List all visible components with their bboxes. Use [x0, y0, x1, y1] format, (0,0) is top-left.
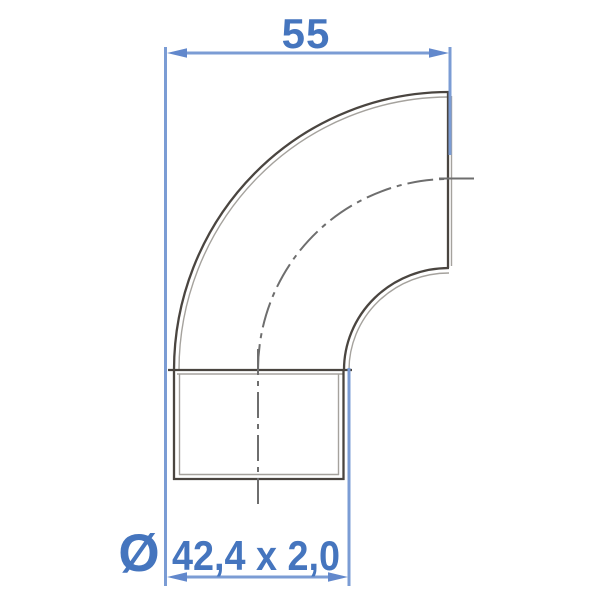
technical-drawing: 55 Ø 42,4 x 2,0 — [0, 0, 600, 600]
top-dim-arrow-right-icon — [429, 48, 449, 58]
dimension-top: 55 — [166, 10, 451, 586]
dimension-bottom: Ø 42,4 x 2,0 — [118, 368, 349, 586]
elbow-inner-arc-highlight — [349, 273, 449, 370]
top-dimension-value: 55 — [282, 10, 331, 57]
elbow-inner-arc — [344, 268, 449, 370]
elbow-outer-arc-highlight — [179, 97, 448, 370]
centerlines — [258, 179, 474, 509]
top-dim-arrow-left-icon — [167, 48, 187, 58]
bottom-dimension-value: 42,4 x 2,0 — [172, 532, 340, 579]
elbow-body — [168, 92, 452, 374]
drawing-canvas: 55 Ø 42,4 x 2,0 — [0, 0, 600, 600]
diameter-symbol: Ø — [118, 524, 159, 583]
elbow-outer-arc — [174, 92, 449, 370]
